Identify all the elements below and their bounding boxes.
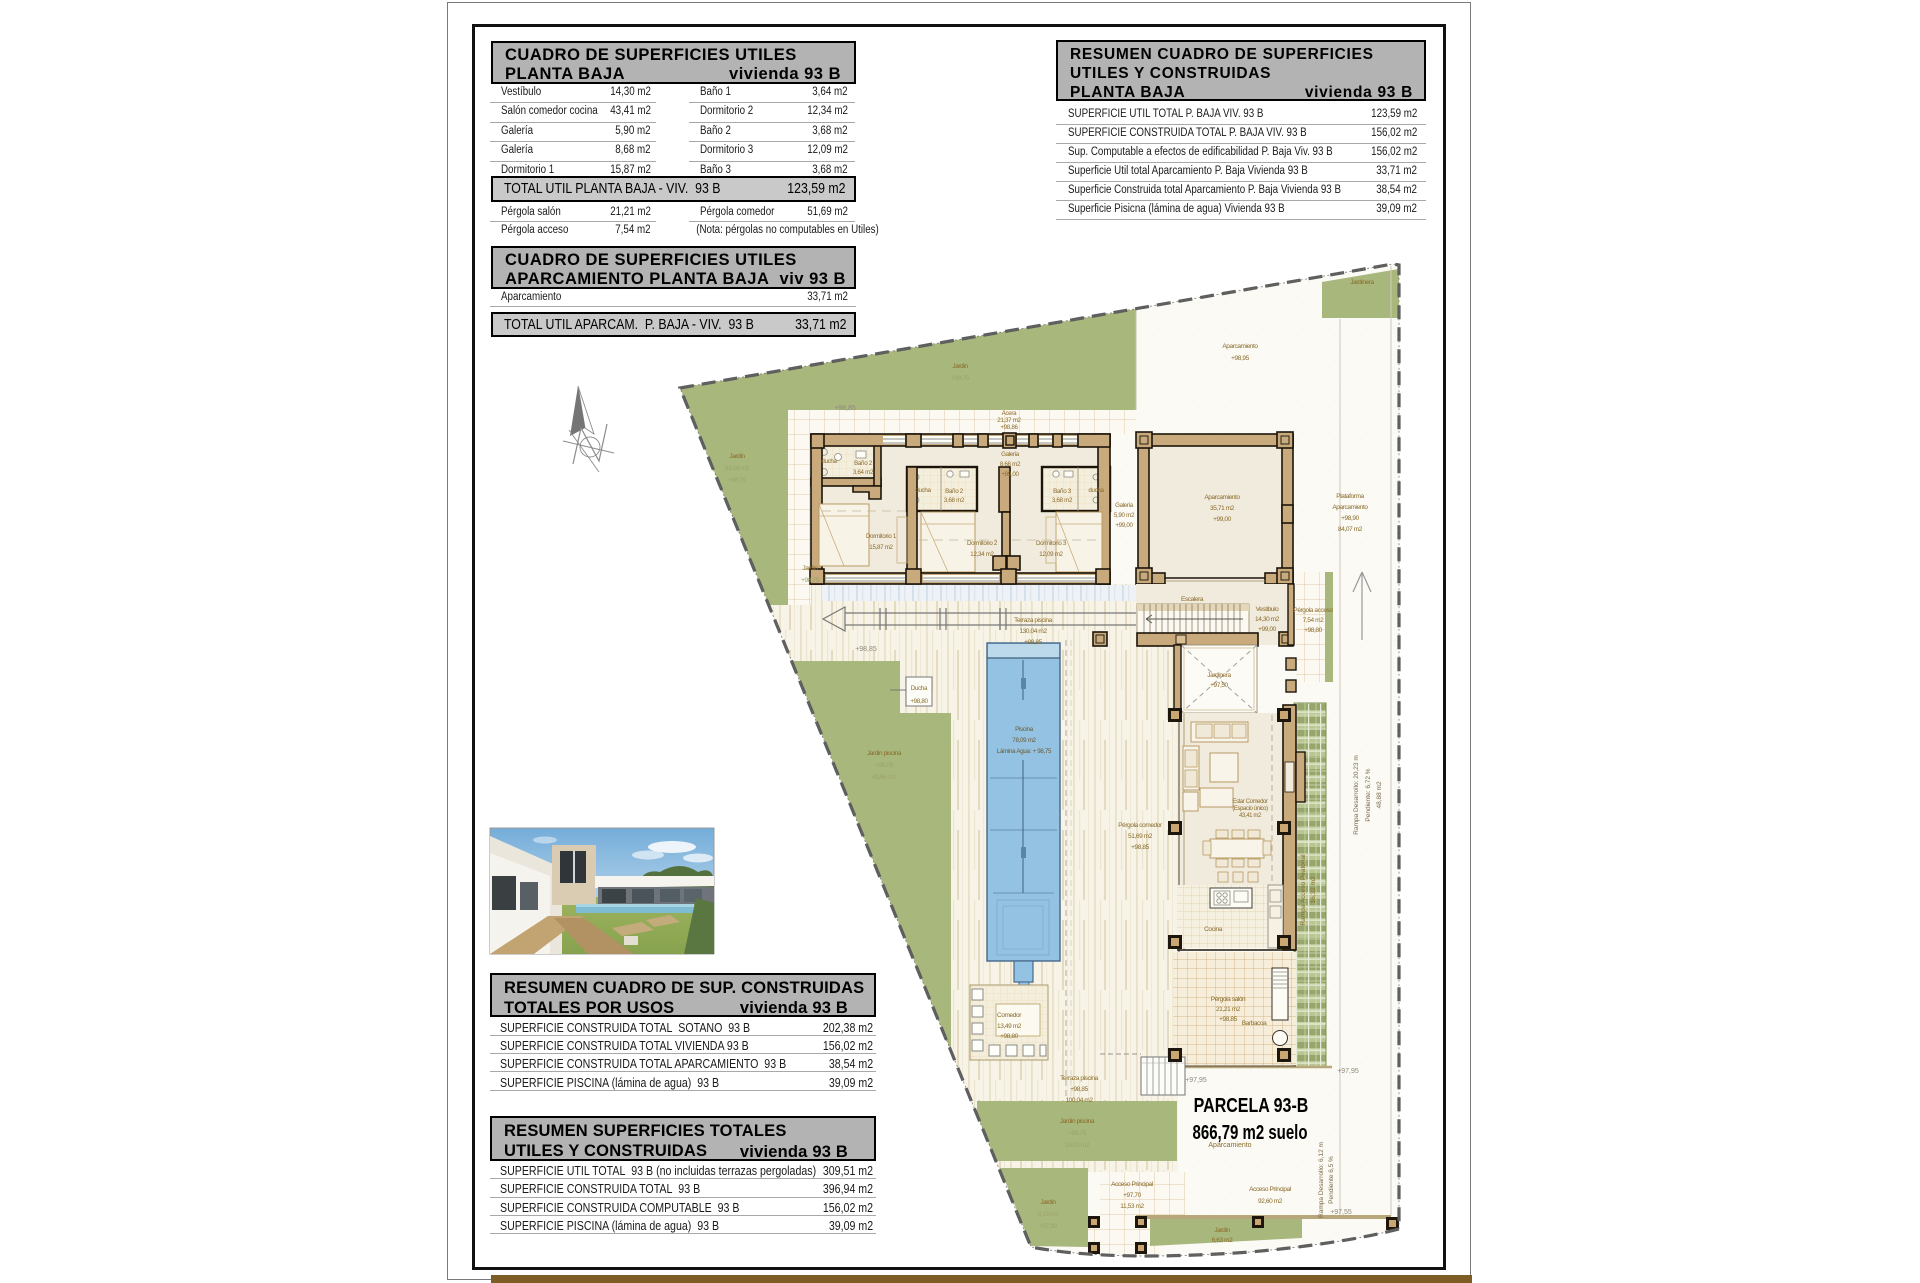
svg-text:Aparcamiento: Aparcamiento bbox=[1222, 343, 1258, 350]
svg-text:PARCELA 93-B: PARCELA 93-B bbox=[1194, 1094, 1309, 1116]
svg-text:Ducha: Ducha bbox=[911, 685, 928, 692]
svg-text:866,79 m2 suelo: 866,79 m2 suelo bbox=[1193, 1121, 1308, 1144]
svg-text:+98,70: +98,70 bbox=[728, 477, 746, 484]
svg-text:12,34 m2: 12,34 m2 bbox=[970, 551, 994, 558]
svg-text:48,88 m2: 48,88 m2 bbox=[1376, 781, 1383, 808]
svg-text:Rampa Desarrollo: 6,12 m: Rampa Desarrollo: 6,12 m bbox=[1318, 1142, 1325, 1218]
svg-text:+99,00: +99,00 bbox=[1213, 516, 1231, 523]
svg-text:21,37 m2: 21,37 m2 bbox=[997, 417, 1021, 424]
svg-text:Aparcamiento: Aparcamiento bbox=[1332, 504, 1368, 511]
svg-text:+98,85: +98,85 bbox=[855, 646, 877, 653]
svg-text:Dormitorio 2: Dormitorio 2 bbox=[967, 540, 998, 547]
svg-text:84,07 m2: 84,07 m2 bbox=[1338, 526, 1363, 533]
svg-text:6,63 m2: 6,63 m2 bbox=[1212, 1237, 1233, 1244]
svg-text:78,09 m2: 78,09 m2 bbox=[1012, 737, 1036, 744]
svg-text:3,68 m2: 3,68 m2 bbox=[1052, 497, 1073, 504]
svg-text:+98,86: +98,86 bbox=[1000, 424, 1018, 431]
svg-text:Comedor: Comedor bbox=[997, 1012, 1022, 1019]
svg-text:Piscina: Piscina bbox=[1015, 726, 1034, 733]
svg-text:Galeria: Galeria bbox=[1115, 502, 1134, 509]
svg-text:ducha: ducha bbox=[821, 458, 837, 465]
svg-text:5,90 m2: 5,90 m2 bbox=[1114, 512, 1135, 519]
svg-text:Rampa Desarrollo: 20,23 m: Rampa Desarrollo: 20,23 m bbox=[1353, 755, 1360, 834]
svg-text:Jardinera: Jardinera bbox=[1350, 279, 1374, 286]
svg-text:Dormitorio 3: Dormitorio 3 bbox=[1036, 540, 1067, 547]
svg-text:Baño 3: Baño 3 bbox=[1053, 488, 1072, 495]
svg-text:43,41 m2: 43,41 m2 bbox=[1239, 813, 1262, 819]
svg-text:+98,95: +98,95 bbox=[1231, 355, 1249, 362]
svg-text:Cocina: Cocina bbox=[1204, 926, 1223, 933]
svg-text:93,16 m2: 93,16 m2 bbox=[725, 465, 750, 472]
svg-text:Galeria: Galeria bbox=[1001, 451, 1020, 458]
svg-text:Acceso Principal: Acceso Principal bbox=[1111, 1181, 1154, 1188]
svg-text:14,30 m2: 14,30 m2 bbox=[1255, 616, 1280, 623]
svg-text:3,68 m2: 3,68 m2 bbox=[944, 497, 965, 504]
svg-text:92,60 m2: 92,60 m2 bbox=[1258, 1198, 1283, 1205]
svg-text:Estar Comedor: Estar Comedor bbox=[1232, 799, 1268, 805]
svg-text:15,87 m2: 15,87 m2 bbox=[869, 544, 893, 551]
svg-text:+97,55: +97,55 bbox=[1330, 1209, 1352, 1216]
svg-text:Escalera: Escalera bbox=[1181, 596, 1204, 603]
svg-text:Jardin: Jardin bbox=[802, 565, 818, 572]
svg-text:11,53 m2: 11,53 m2 bbox=[1120, 1203, 1144, 1210]
svg-text:7,54 m2: 7,54 m2 bbox=[1303, 617, 1324, 624]
svg-text:+97,90: +97,90 bbox=[1039, 1223, 1057, 1230]
svg-text:+98,85: +98,85 bbox=[1131, 844, 1149, 851]
svg-text:Jardin piscina: Jardin piscina bbox=[867, 750, 902, 757]
svg-text:Pérgola salón: Pérgola salón bbox=[1211, 996, 1246, 1003]
svg-text:Rampa Acceso Peatonal: Rampa Acceso Peatonal bbox=[1300, 854, 1307, 926]
svg-text:19,03 m2: 19,03 m2 bbox=[1065, 1142, 1090, 1149]
svg-text:Pendiente 6,5 %: Pendiente 6,5 % bbox=[1328, 1156, 1335, 1204]
svg-text:+98,05: +98,05 bbox=[875, 762, 893, 769]
svg-text:+99,00: +99,00 bbox=[1001, 471, 1019, 478]
svg-text:+97,50: +97,50 bbox=[1210, 682, 1228, 689]
svg-text:100,04 m2: 100,04 m2 bbox=[1065, 1097, 1093, 1104]
svg-text:+98,90: +98,90 bbox=[1341, 515, 1359, 522]
svg-text:Vestibulo: Vestibulo bbox=[1256, 606, 1280, 613]
svg-text:+97,95: +97,95 bbox=[1185, 1077, 1207, 1084]
svg-text:Terraza piscina: Terraza piscina bbox=[1014, 617, 1052, 624]
svg-text:ducha: ducha bbox=[1088, 487, 1104, 494]
svg-text:+98,80: +98,80 bbox=[1304, 627, 1322, 634]
svg-text:Jardin: Jardin bbox=[1040, 1199, 1056, 1206]
svg-text:ducha: ducha bbox=[915, 487, 931, 494]
svg-text:+98,85: +98,85 bbox=[1024, 639, 1042, 646]
svg-text:+98,75: +98,75 bbox=[1068, 1130, 1086, 1137]
svg-text:21,21 m2: 21,21 m2 bbox=[1216, 1006, 1241, 1013]
svg-text:130,04 m2: 130,04 m2 bbox=[1019, 628, 1047, 635]
svg-text:Jardin: Jardin bbox=[1214, 1227, 1230, 1234]
svg-text:+98,85: +98,85 bbox=[834, 405, 856, 412]
svg-text:Pendiente: 6,72 %: Pendiente: 6,72 % bbox=[1365, 768, 1372, 821]
svg-text:Acceso Principal: Acceso Principal bbox=[1249, 1186, 1292, 1193]
svg-text:Jardin: Jardin bbox=[729, 453, 745, 460]
svg-text:+98,80: +98,80 bbox=[910, 698, 928, 705]
svg-text:8,68 m2: 8,68 m2 bbox=[1000, 461, 1021, 468]
svg-text:Aparcamiento: Aparcamiento bbox=[1208, 1142, 1251, 1149]
svg-text:16,32 m2: 16,32 m2 bbox=[1310, 876, 1317, 903]
svg-text:Dormitorio 1: Dormitorio 1 bbox=[866, 533, 897, 540]
svg-text:12,09 m2: 12,09 m2 bbox=[1039, 551, 1063, 558]
svg-text:+99,75: +99,75 bbox=[951, 375, 969, 382]
svg-text:Terraza piscina: Terraza piscina bbox=[1060, 1075, 1098, 1082]
svg-text:Jardin piscina: Jardin piscina bbox=[1060, 1118, 1095, 1125]
svg-text:Acera: Acera bbox=[1002, 410, 1018, 417]
svg-text:+98,75: +98,75 bbox=[801, 577, 819, 584]
svg-text:Baño 2: Baño 2 bbox=[945, 488, 964, 495]
svg-text:Pérgola acceso: Pérgola acceso bbox=[1293, 607, 1333, 614]
svg-text:Barbacoa: Barbacoa bbox=[1242, 1020, 1267, 1027]
svg-text:Plataforma: Plataforma bbox=[1336, 493, 1364, 500]
svg-text:(Espacio único): (Espacio único) bbox=[1232, 806, 1268, 812]
svg-text:51,69 m2: 51,69 m2 bbox=[1128, 833, 1153, 840]
svg-text:35,71 m2: 35,71 m2 bbox=[1210, 505, 1235, 512]
svg-text:+99,00: +99,00 bbox=[1258, 626, 1276, 633]
svg-text:+99,00: +99,00 bbox=[1115, 522, 1133, 529]
svg-text:+98,85: +98,85 bbox=[1070, 1086, 1088, 1093]
svg-text:13,49 m2: 13,49 m2 bbox=[997, 1023, 1022, 1030]
svg-text:+97,70: +97,70 bbox=[1123, 1192, 1141, 1199]
svg-text:Aparcamiento: Aparcamiento bbox=[1204, 494, 1240, 501]
svg-text:Jardinera: Jardinera bbox=[1207, 672, 1231, 679]
svg-text:Pérgola comedor: Pérgola comedor bbox=[1118, 822, 1163, 829]
svg-text:Baño 2: Baño 2 bbox=[854, 460, 873, 467]
svg-text:Lámina Agua: + 98,75: Lámina Agua: + 98,75 bbox=[997, 748, 1052, 755]
svg-text:+97,95: +97,95 bbox=[1337, 1068, 1359, 1075]
svg-text:49,66 m2: 49,66 m2 bbox=[872, 774, 897, 781]
svg-text:+98,85: +98,85 bbox=[1219, 1016, 1237, 1023]
svg-text:Jardin: Jardin bbox=[952, 363, 968, 370]
svg-text:3,64 m2: 3,64 m2 bbox=[853, 469, 874, 476]
svg-text:9,19 m2: 9,19 m2 bbox=[1038, 1211, 1059, 1218]
svg-text:+98,80: +98,80 bbox=[1000, 1033, 1018, 1040]
